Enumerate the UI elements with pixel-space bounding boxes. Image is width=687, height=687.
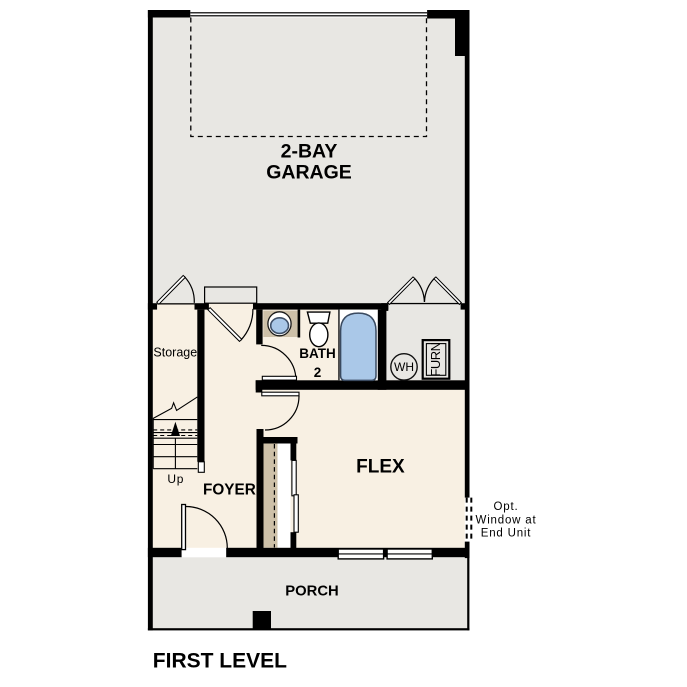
svg-text:BATH: BATH — [299, 346, 336, 361]
svg-text:Storage: Storage — [153, 346, 197, 360]
svg-text:WH: WH — [394, 360, 414, 374]
svg-text:Window at: Window at — [476, 514, 537, 526]
svg-text:FOYER: FOYER — [203, 482, 256, 499]
svg-text:FLEX: FLEX — [356, 457, 405, 478]
svg-text:Opt.: Opt. — [494, 501, 519, 513]
svg-text:2: 2 — [314, 365, 322, 380]
svg-text:FIRST LEVEL: FIRST LEVEL — [153, 649, 287, 672]
svg-text:PORCH: PORCH — [285, 584, 338, 600]
svg-text:End Unit: End Unit — [481, 528, 532, 540]
svg-text:FURN: FURN — [428, 342, 443, 376]
svg-text:GARAGE: GARAGE — [266, 161, 352, 183]
svg-text:2-BAY: 2-BAY — [281, 140, 338, 162]
svg-text:Up: Up — [167, 472, 184, 486]
